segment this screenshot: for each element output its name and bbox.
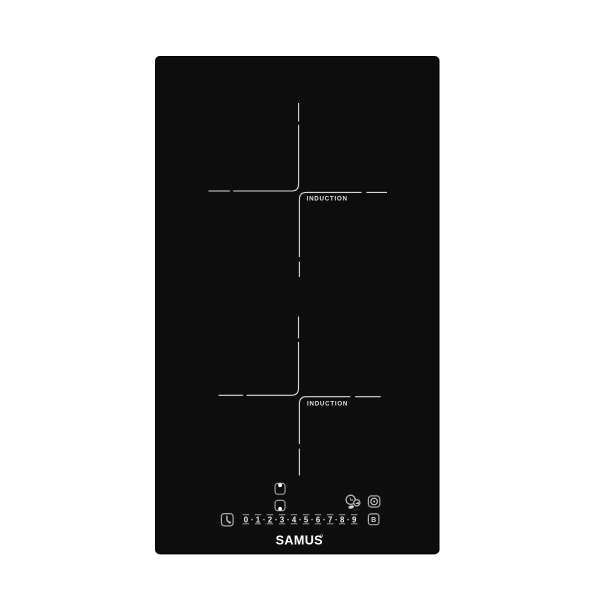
svg-text:SAMUS: SAMUS: [276, 534, 323, 548]
svg-text:B: B: [371, 517, 376, 524]
svg-text:9: 9: [352, 516, 357, 525]
svg-text:2: 2: [268, 516, 273, 525]
svg-text:0: 0: [244, 516, 249, 525]
svg-text:3: 3: [280, 516, 285, 525]
svg-text:6: 6: [316, 516, 321, 525]
svg-text:5: 5: [304, 516, 309, 525]
svg-text:INDUCTION: INDUCTION: [307, 195, 348, 202]
svg-text:4: 4: [292, 516, 297, 525]
svg-text:1: 1: [256, 516, 261, 525]
svg-text:8: 8: [340, 516, 345, 525]
svg-text:INDUCTION: INDUCTION: [307, 400, 348, 407]
svg-text:7: 7: [328, 516, 332, 525]
